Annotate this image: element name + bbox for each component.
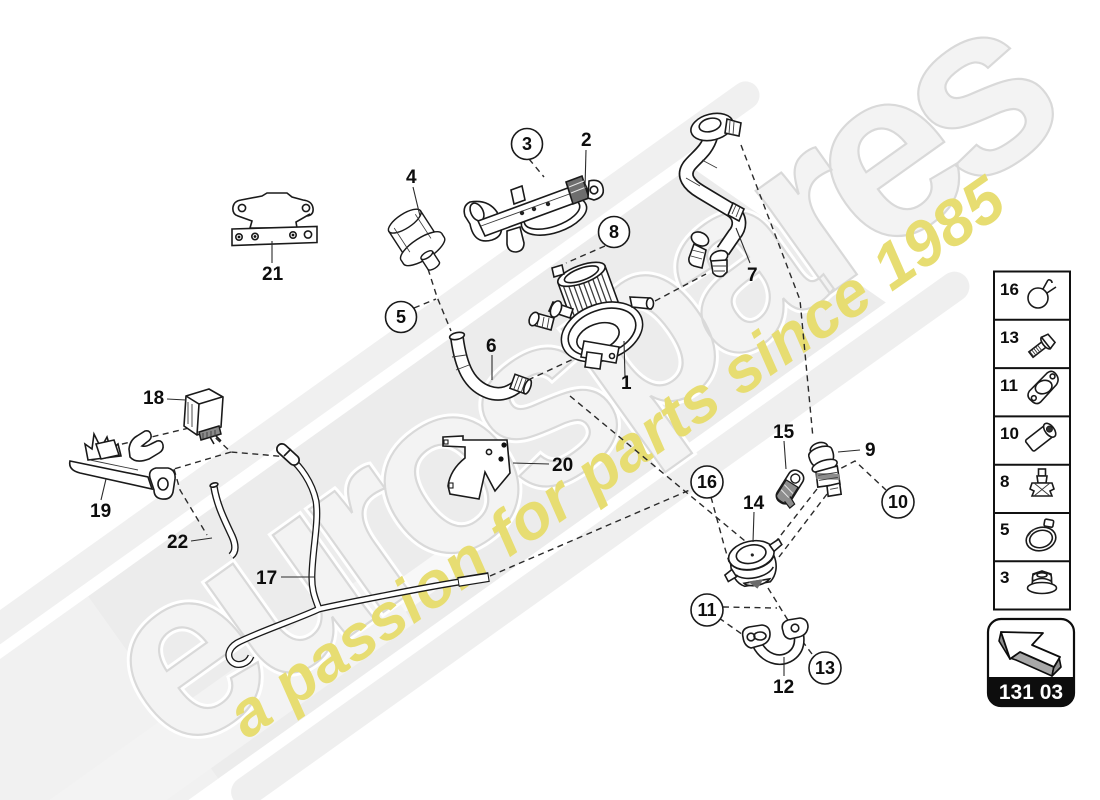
svg-text:8: 8 (1000, 472, 1009, 491)
svg-text:6: 6 (486, 336, 497, 357)
svg-text:131 03: 131 03 (999, 681, 1063, 704)
svg-text:11: 11 (1000, 376, 1018, 395)
svg-text:3: 3 (522, 134, 532, 154)
svg-text:5: 5 (1000, 520, 1009, 539)
svg-text:12: 12 (773, 677, 794, 698)
svg-text:20: 20 (552, 455, 573, 476)
svg-text:2: 2 (581, 130, 592, 151)
svg-text:17: 17 (256, 568, 277, 589)
svg-text:8: 8 (609, 222, 619, 242)
svg-text:16: 16 (1000, 280, 1019, 299)
svg-text:9: 9 (865, 440, 876, 461)
svg-text:5: 5 (396, 307, 406, 327)
svg-text:22: 22 (167, 532, 188, 553)
svg-text:21: 21 (262, 264, 284, 285)
svg-text:1: 1 (621, 373, 632, 394)
svg-text:16: 16 (697, 472, 717, 492)
svg-text:13: 13 (1000, 328, 1019, 347)
svg-text:19: 19 (90, 501, 111, 522)
svg-text:11: 11 (697, 600, 716, 620)
svg-text:10: 10 (888, 492, 908, 512)
svg-text:15: 15 (773, 422, 795, 443)
svg-text:14: 14 (743, 493, 765, 514)
svg-text:4: 4 (406, 167, 417, 188)
svg-text:18: 18 (143, 388, 164, 409)
svg-text:7: 7 (747, 265, 758, 286)
svg-text:10: 10 (1000, 424, 1019, 443)
svg-text:3: 3 (1000, 568, 1009, 587)
svg-text:13: 13 (815, 658, 835, 678)
